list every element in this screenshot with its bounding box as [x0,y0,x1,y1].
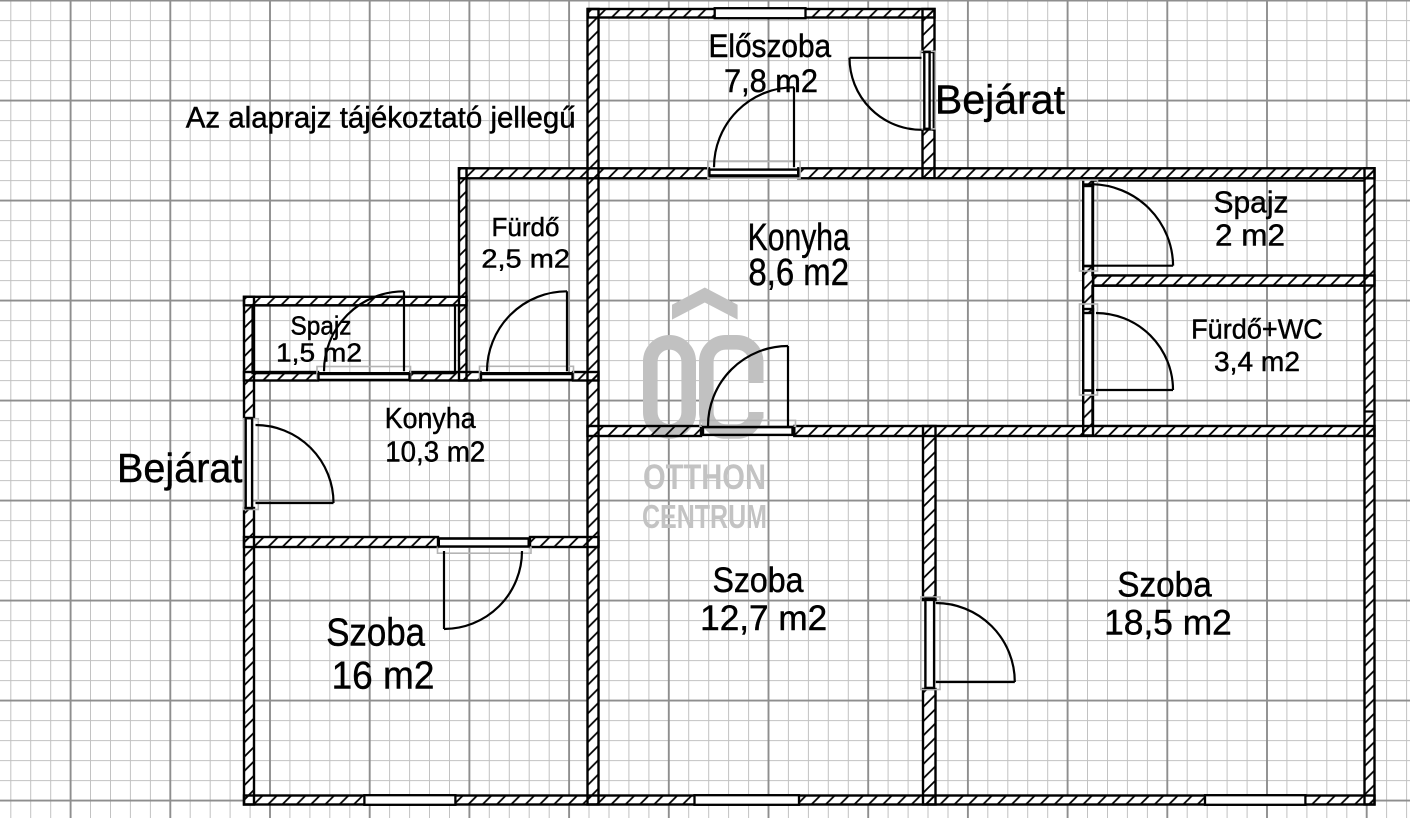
svg-text:Szoba: Szoba [326,612,425,655]
svg-text:CENTRUM: CENTRUM [642,498,767,535]
svg-text:18,5 m2: 18,5 m2 [1104,604,1232,643]
svg-text:Szoba: Szoba [712,561,804,600]
svg-text:1,5 m2: 1,5 m2 [276,338,362,368]
svg-text:7,8 m2: 7,8 m2 [724,63,818,99]
svg-text:2,5 m2: 2,5 m2 [481,244,570,274]
svg-text:10,3 m2: 10,3 m2 [385,437,485,469]
svg-text:Konyha: Konyha [385,403,477,435]
svg-text:Az alaprajz tájékoztató jelleg: Az alaprajz tájékoztató jellegű [186,102,576,135]
svg-text:12,7 m2: 12,7 m2 [700,599,827,638]
svg-text:16 m2: 16 m2 [332,655,435,698]
svg-text:Előszoba: Előszoba [708,28,831,64]
svg-text:Bejárat: Bejárat [117,445,243,491]
svg-text:Fürdő: Fürdő [492,212,560,242]
svg-text:OTTHON: OTTHON [643,458,766,497]
svg-text:Bejárat: Bejárat [935,77,1066,123]
svg-text:Szoba: Szoba [1117,566,1212,605]
svg-text:Spajz: Spajz [291,311,352,341]
svg-text:8,6 m2: 8,6 m2 [748,252,849,294]
svg-text:3,4 m2: 3,4 m2 [1214,346,1300,377]
svg-text:Spajz: Spajz [1214,185,1289,220]
svg-text:Fürdő+WC: Fürdő+WC [1191,314,1323,345]
svg-text:2 m2: 2 m2 [1215,218,1285,253]
